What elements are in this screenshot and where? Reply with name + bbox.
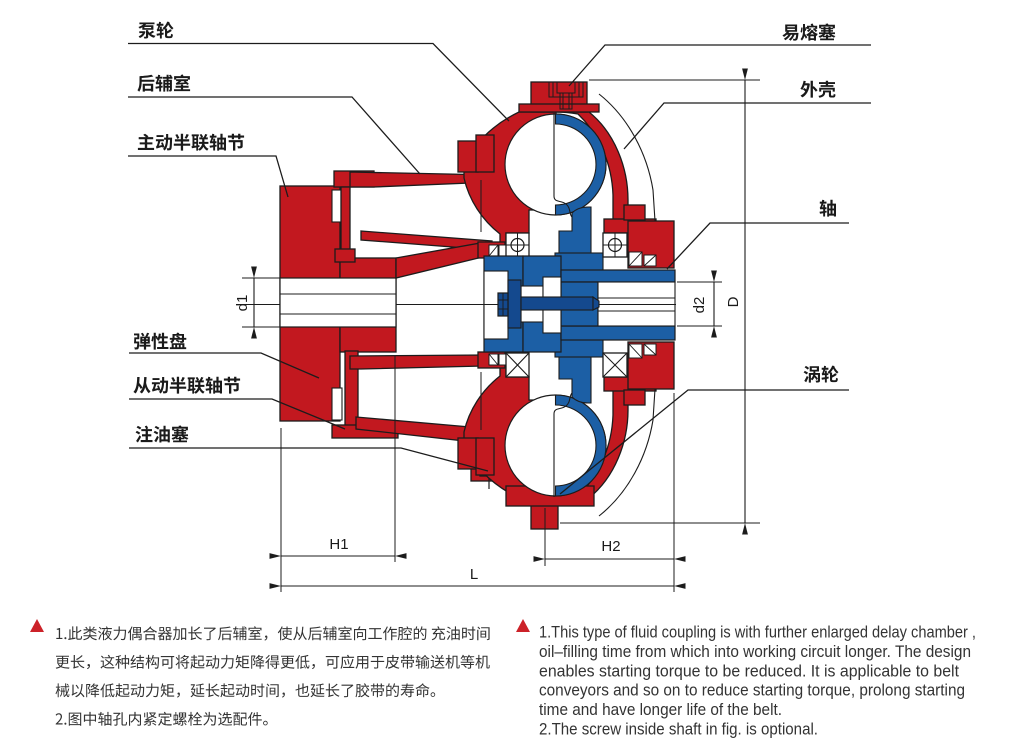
svg-text:enables starting torque to be: enables starting torque to be reduced. I… xyxy=(539,661,959,680)
svg-text:conveyors and so on to reduce: conveyors and so on to reduce starting t… xyxy=(539,681,965,700)
svg-text:L: L xyxy=(470,566,478,583)
svg-text:oil–filling time from which in: oil–filling time from which into working… xyxy=(539,642,971,661)
svg-text:D: D xyxy=(725,296,742,307)
svg-text:H2: H2 xyxy=(601,538,620,555)
svg-text:H1: H1 xyxy=(329,536,348,553)
svg-text:2.The screw inside shaft in fi: 2.The screw inside shaft in fig. is opti… xyxy=(539,720,818,739)
svg-text:d2: d2 xyxy=(691,297,708,314)
svg-text:time and have longer life of t: time and have longer life of the belt. xyxy=(539,700,782,719)
svg-text:1.This type of fluid coupling: 1.This type of fluid coupling is with fu… xyxy=(539,623,976,642)
svg-text:d1: d1 xyxy=(234,295,251,312)
